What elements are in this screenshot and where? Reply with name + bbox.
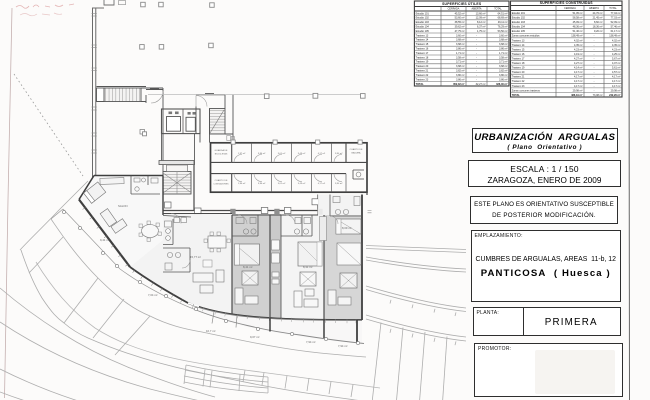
svg-text:3,58 m²: 3,58 m² [456,56,465,59]
svg-text:8,12 m²: 8,12 m² [477,21,486,24]
svg-text:Estudio 104: Estudio 104 [416,26,430,29]
svg-text:Trastero 13: Trastero 13 [512,39,525,42]
svg-text:CERRADA: CERRADA [448,8,460,11]
svg-text:CUARTO DE: CUARTO DE [350,148,363,151]
svg-text:24,76 m²: 24,76 m² [593,12,603,15]
svg-text:Estudio 101: Estudio 101 [416,12,430,15]
svg-text:Trastero 20: Trastero 20 [416,65,429,68]
svg-text:3,86 m²: 3,86 m² [456,78,465,81]
svg-text:Trastero 22: Trastero 22 [512,80,525,83]
svg-text:4,35 m²: 4,35 m² [574,44,583,47]
svg-text:Trastero 13: Trastero 13 [416,34,429,37]
svg-text:32,27 m²: 32,27 m² [476,83,486,86]
svg-text:4,23 m²: 4,23 m² [574,48,583,51]
svg-text:45,52 m²: 45,52 m² [455,12,465,15]
svg-text:57,46 m²: 57,46 m² [611,26,621,29]
svg-text:53,50 m²: 53,50 m² [498,30,508,33]
svg-text:Trastero 19: Trastero 19 [416,61,429,64]
svg-text:Trastero 18: Trastero 18 [416,56,429,59]
svg-text:3,43 m²: 3,43 m² [298,152,306,155]
svg-text:Trastero 14: Trastero 14 [512,44,525,47]
svg-text:3,82 m²: 3,82 m² [456,70,465,73]
svg-text:Trastero 23: Trastero 23 [512,85,525,88]
svg-text:Trastero 21: Trastero 21 [416,70,429,73]
svg-text:CERRADA: CERRADA [564,7,576,10]
svg-text:4,23 m²: 4,23 m² [612,48,621,51]
svg-text:76,29 m²: 76,29 m² [498,26,508,29]
svg-text:3,80 m²: 3,80 m² [258,152,266,155]
svg-text:Estudio 102: Estudio 102 [512,17,526,20]
svg-text:4,17 m²: 4,17 m² [574,71,583,74]
svg-text:13,66 m²: 13,66 m² [476,12,486,15]
svg-text:Trastero 20: Trastero 20 [512,71,525,74]
svg-text:TOTAL: TOTAL [494,8,502,11]
svg-text:9,20 m²: 9,20 m² [594,30,603,33]
svg-text:4,17 m²: 4,17 m² [574,76,583,79]
svg-text:3,86 m²: 3,86 m² [499,78,508,81]
svg-text:15,77 m²: 15,77 m² [190,255,201,259]
svg-text:52,09 m²: 52,09 m² [611,21,621,24]
svg-text:Trastero 17: Trastero 17 [512,57,525,60]
svg-text:4,02 m²: 4,02 m² [612,39,621,42]
svg-text:58,58 m²: 58,58 m² [573,17,583,20]
svg-text:1,75 m²: 1,75 m² [477,30,486,33]
svg-text:5,61 m²: 5,61 m² [612,67,621,70]
svg-text:1,84 m²: 1,84 m² [238,182,246,185]
svg-text:Estudio 105: Estudio 105 [416,30,430,33]
svg-text:352,02 m²: 352,02 m² [453,82,465,86]
svg-text:8,09 m²: 8,09 m² [342,226,352,230]
svg-text:6,37 m²: 6,37 m² [477,26,486,29]
svg-text:242,26 m²: 242,26 m² [609,93,621,97]
svg-text:4,25 m²: 4,25 m² [612,53,621,56]
svg-text:Trastero 14: Trastero 14 [416,39,429,42]
svg-text:Estudio 103: Estudio 103 [416,21,430,24]
svg-text:ABIERTA: ABIERTA [589,7,599,10]
svg-text:Estudio 101: Estudio 101 [512,12,526,15]
svg-text:46,11 m²: 46,11 m² [498,21,508,24]
svg-text:4,17 m²: 4,17 m² [612,76,621,79]
svg-text:3,01 m²: 3,01 m² [278,152,286,155]
svg-text:3,80 m²: 3,80 m² [456,74,465,77]
svg-text:3,80 m²: 3,80 m² [335,152,343,155]
svg-text:3,68 m²: 3,68 m² [499,43,508,46]
svg-text:51,46 m²: 51,46 m² [573,30,583,33]
svg-text:Trastero 17: Trastero 17 [416,52,429,55]
svg-text:4,07 m²: 4,07 m² [612,62,621,65]
svg-text:Estudio 102: Estudio 102 [416,17,430,20]
svg-text:3,71 m²: 3,71 m² [499,61,508,64]
svg-text:486,19 m²: 486,19 m² [571,93,583,97]
svg-text:7,94 m²: 7,94 m² [306,340,316,344]
svg-text:4,17 m²: 4,17 m² [318,152,326,155]
svg-text:4,19 m²: 4,19 m² [574,53,583,56]
svg-text:29,98 m²: 29,98 m² [573,89,583,92]
svg-text:3,60 m²: 3,60 m² [456,34,465,37]
svg-text:53,60 m²: 53,60 m² [455,17,465,20]
svg-text:BASURA: BASURA [352,152,362,155]
svg-text:3,86 m²: 3,86 m² [499,48,508,51]
svg-text:BICICLETAS: BICICLETAS [215,153,228,156]
svg-text:4,27 m²: 4,27 m² [574,57,583,60]
svg-text:1,71 m²: 1,71 m² [499,52,508,55]
svg-text:TOTAL: TOTAL [512,94,521,97]
svg-text:1,97 m²: 1,97 m² [238,152,246,155]
svg-text:SUPERFICIES ÚTILES: SUPERFICIES ÚTILES [442,1,482,6]
svg-text:9,41 m²: 9,41 m² [100,238,110,242]
svg-text:Trastero 15: Trastero 15 [416,43,429,46]
svg-text:3,80 m²: 3,80 m² [258,182,266,185]
svg-text:4,27 m²: 4,27 m² [574,62,583,65]
svg-text:Trastero 21: Trastero 21 [512,76,525,79]
svg-text:Estudio 105: Estudio 105 [512,30,526,33]
svg-text:4,02 m²: 4,02 m² [574,39,583,42]
svg-text:SALON: SALON [118,204,127,208]
svg-text:18,36 m²: 18,36 m² [593,26,603,29]
svg-text:Trastero 23: Trastero 23 [416,78,429,81]
svg-text:73,08 m²: 73,08 m² [593,94,603,97]
svg-text:10,7 m²: 10,7 m² [206,329,216,333]
svg-text:Trastero 19: Trastero 19 [512,67,525,70]
svg-text:3,01 m²: 3,01 m² [278,182,286,185]
svg-text:CUARTO DE: CUARTO DE [215,179,228,182]
svg-text:326,40 m²: 326,40 m² [496,82,508,86]
svg-text:Trastero 15: Trastero 15 [512,48,525,51]
svg-text:5,67 m²: 5,67 m² [612,57,621,60]
svg-text:3,68 m²: 3,68 m² [499,65,508,68]
svg-text:21,45 m²: 21,45 m² [593,17,603,20]
svg-text:Trastero 16: Trastero 16 [416,48,429,51]
svg-text:3,43 m²: 3,43 m² [298,182,306,185]
svg-text:4,17 m²: 4,17 m² [574,85,583,88]
svg-text:138,49 m²: 138,49 m² [609,35,620,38]
svg-text:CONTADORES: CONTADORES [213,183,229,186]
svg-text:8,41 m²: 8,41 m² [243,265,253,269]
svg-text:4,14 m²: 4,14 m² [574,67,583,70]
svg-text:Estudio 103: Estudio 103 [512,21,526,24]
svg-text:68,69 m²: 68,69 m² [498,17,508,20]
svg-text:3,71 m²: 3,71 m² [456,61,465,64]
svg-text:3,68 m²: 3,68 m² [456,43,465,46]
svg-text:3,68 m²: 3,68 m² [456,65,465,68]
svg-text:4,17 m²: 4,17 m² [612,85,621,88]
svg-text:3,58 m²: 3,58 m² [499,56,508,59]
svg-text:9,07 m²: 9,07 m² [250,335,260,339]
svg-text:TOTAL: TOTAL [416,83,425,86]
svg-text:77,03 m²: 77,03 m² [611,17,621,20]
svg-text:29,98 m²: 29,98 m² [611,89,621,92]
svg-text:Estudio 104: Estudio 104 [512,26,526,29]
svg-text:61,17 m²: 61,17 m² [611,30,621,33]
svg-text:7,04 m²: 7,04 m² [148,293,158,297]
svg-text:4,17 m²: 4,17 m² [574,80,583,83]
svg-text:3,82 m²: 3,82 m² [499,70,508,73]
svg-text:Trastero 18: Trastero 18 [512,62,525,65]
svg-text:64,51 m²: 64,51 m² [498,12,508,15]
svg-text:3,80 m²: 3,80 m² [335,182,343,185]
svg-text:4,17 m²: 4,17 m² [612,80,621,83]
svg-text:Trastero 16: Trastero 16 [512,53,525,56]
svg-text:138,49 m²: 138,49 m² [571,35,582,38]
svg-text:4,57 m²: 4,57 m² [612,71,621,74]
svg-text:3,60 m²: 3,60 m² [499,34,508,37]
svg-text:3,80 m²: 3,80 m² [499,74,508,77]
svg-text:3,68 m²: 3,68 m² [456,39,465,42]
svg-text:Zonas comunes estudios: Zonas comunes estudios [512,35,541,38]
svg-text:Trastero 22: Trastero 22 [416,74,429,77]
svg-text:45,09 m²: 45,09 m² [573,21,583,24]
svg-text:1,71 m²: 1,71 m² [456,52,465,55]
svg-text:TOTAL: TOTAL [609,7,617,10]
svg-text:3,68 m²: 3,68 m² [499,39,508,42]
svg-text:77,04 m²: 77,04 m² [611,12,621,15]
svg-text:Zonas comunes trasteros: Zonas comunes trasteros [512,89,541,92]
svg-text:51,05 m²: 51,05 m² [573,12,583,15]
svg-text:8,41 m²: 8,41 m² [303,265,313,269]
svg-text:7,94 m²: 7,94 m² [338,344,348,348]
svg-text:SUPERFICIES CONSTRUIDAS: SUPERFICIES CONSTRUIDAS [540,1,594,5]
svg-text:ABIERTA: ABIERTA [471,8,481,11]
svg-text:3,86 m²: 3,86 m² [456,48,465,51]
svg-text:GUARDA DE: GUARDA DE [215,149,228,152]
svg-text:47,75 m²: 47,75 m² [455,30,465,33]
svg-text:12,09 m²: 12,09 m² [476,17,486,20]
svg-text:48,36 m²: 48,36 m² [573,26,583,29]
svg-text:4,35 m²: 4,35 m² [612,44,621,47]
svg-text:38,55 m²: 38,55 m² [455,21,465,24]
svg-text:4,17 m²: 4,17 m² [318,182,326,185]
svg-text:39,62 m²: 39,62 m² [455,26,465,29]
svg-text:8,60 m²: 8,60 m² [594,21,603,24]
